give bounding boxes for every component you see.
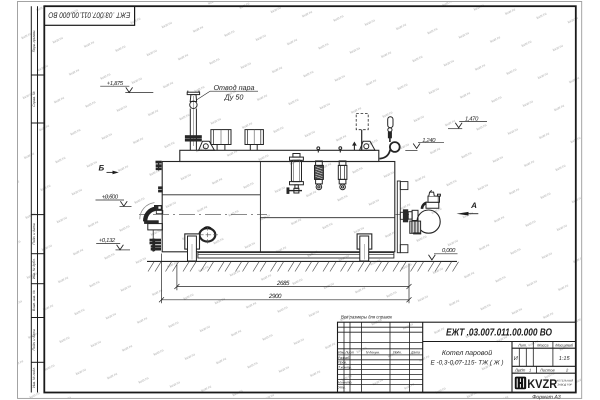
svg-text:Т.контр.: Т.контр. (338, 365, 352, 369)
svg-text:Лит.: Лит. (517, 343, 527, 347)
svg-text:N докум.: N докум. (366, 351, 380, 355)
svg-text:Отвод пара: Отвод пара (213, 83, 254, 92)
svg-text:Подп.: Подп. (393, 351, 402, 355)
svg-text:А: А (470, 201, 477, 210)
svg-text:И: И (514, 356, 518, 362)
svg-text:Дата: Дата (410, 351, 420, 355)
svg-text:1:15: 1:15 (559, 356, 571, 362)
svg-text:Взам. инв. №: Взам. инв. № (32, 290, 36, 311)
svg-text:Инв. № дубл.: Инв. № дубл. (32, 258, 36, 279)
svg-text:Утв.: Утв. (338, 385, 346, 389)
svg-text:Инв. № подл.: Инв. № подл. (32, 367, 36, 388)
svg-text:Б: Б (98, 163, 104, 172)
svg-text:Перв. примен.: Перв. примен. (32, 30, 36, 53)
svg-text:Масштаб: Масштаб (555, 343, 574, 347)
svg-text:2685: 2685 (276, 280, 290, 287)
svg-text:2900: 2900 (268, 293, 282, 300)
svg-text:1: 1 (529, 368, 531, 373)
svg-text:Подп. и дата: Подп. и дата (32, 329, 36, 350)
svg-text:Лист: Лист (514, 368, 526, 373)
svg-text:+1,875: +1,875 (107, 80, 124, 87)
svg-text:Е -0,3-0,07-115- ТЖ ( Ж ): Е -0,3-0,07-115- ТЖ ( Ж ) (430, 360, 503, 367)
svg-text:Изм.Лист: Изм.Лист (338, 351, 354, 355)
svg-text:+0,600: +0,600 (102, 194, 119, 201)
svg-text:Ду 50: Ду 50 (224, 92, 244, 101)
svg-text:Разраб.: Разраб. (338, 356, 350, 360)
svg-text:Листов: Листов (539, 368, 555, 373)
svg-text:Н.контр.: Н.контр. (338, 380, 352, 384)
svg-text:KVZR: KVZR (527, 377, 557, 391)
svg-text:ЗАВОД РЭР: ЗАВОД РЭР (557, 384, 572, 387)
svg-text:Справ. №: Справ. № (32, 91, 36, 107)
svg-text:Масса: Масса (537, 343, 548, 347)
svg-text:Пров.: Пров. (338, 361, 347, 365)
svg-text:Формат А3: Формат А3 (532, 395, 560, 400)
svg-text:Подп. и дата: Подп. и дата (32, 223, 36, 244)
svg-text:Все размеры для справок: Все размеры для справок (341, 315, 393, 321)
svg-text:ЕЖТ .03.007.011.00.000 ВО: ЕЖТ .03.007.011.00.000 ВО (446, 328, 552, 339)
svg-text:ЕЖТ .03.007.011.00.000 ВО: ЕЖТ .03.007.011.00.000 ВО (48, 11, 130, 20)
svg-text:КОТЕЛЬНЫЙ: КОТЕЛЬНЫЙ (557, 378, 573, 382)
svg-text:0,000: 0,000 (442, 247, 456, 254)
svg-text:+0,132: +0,132 (99, 237, 116, 244)
svg-text:1,240: 1,240 (422, 137, 436, 144)
svg-text:Котел паровой: Котел паровой (442, 349, 492, 357)
